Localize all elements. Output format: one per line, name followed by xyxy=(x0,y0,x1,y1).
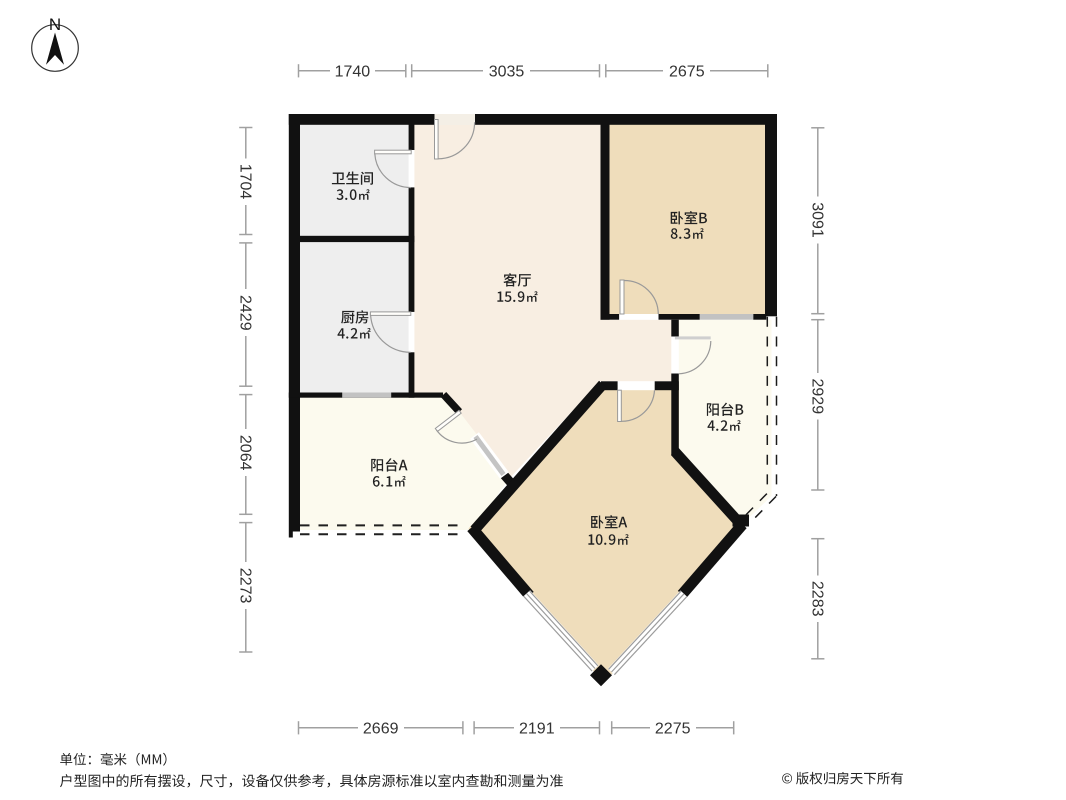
svg-text:3035: 3035 xyxy=(489,63,525,80)
svg-text:1740: 1740 xyxy=(335,63,371,80)
svg-text:2191: 2191 xyxy=(519,720,555,737)
svg-text:3091: 3091 xyxy=(808,202,825,238)
svg-text:N: N xyxy=(49,15,61,34)
svg-text:2669: 2669 xyxy=(363,720,399,737)
svg-text:2283: 2283 xyxy=(808,581,825,617)
svg-text:1704: 1704 xyxy=(236,164,253,200)
svg-text:2064: 2064 xyxy=(236,435,253,471)
svg-text:2675: 2675 xyxy=(669,63,705,80)
svg-text:2929: 2929 xyxy=(808,379,825,415)
svg-text:2429: 2429 xyxy=(236,295,253,331)
svg-text:2273: 2273 xyxy=(236,568,253,604)
svg-text:2275: 2275 xyxy=(655,720,691,737)
